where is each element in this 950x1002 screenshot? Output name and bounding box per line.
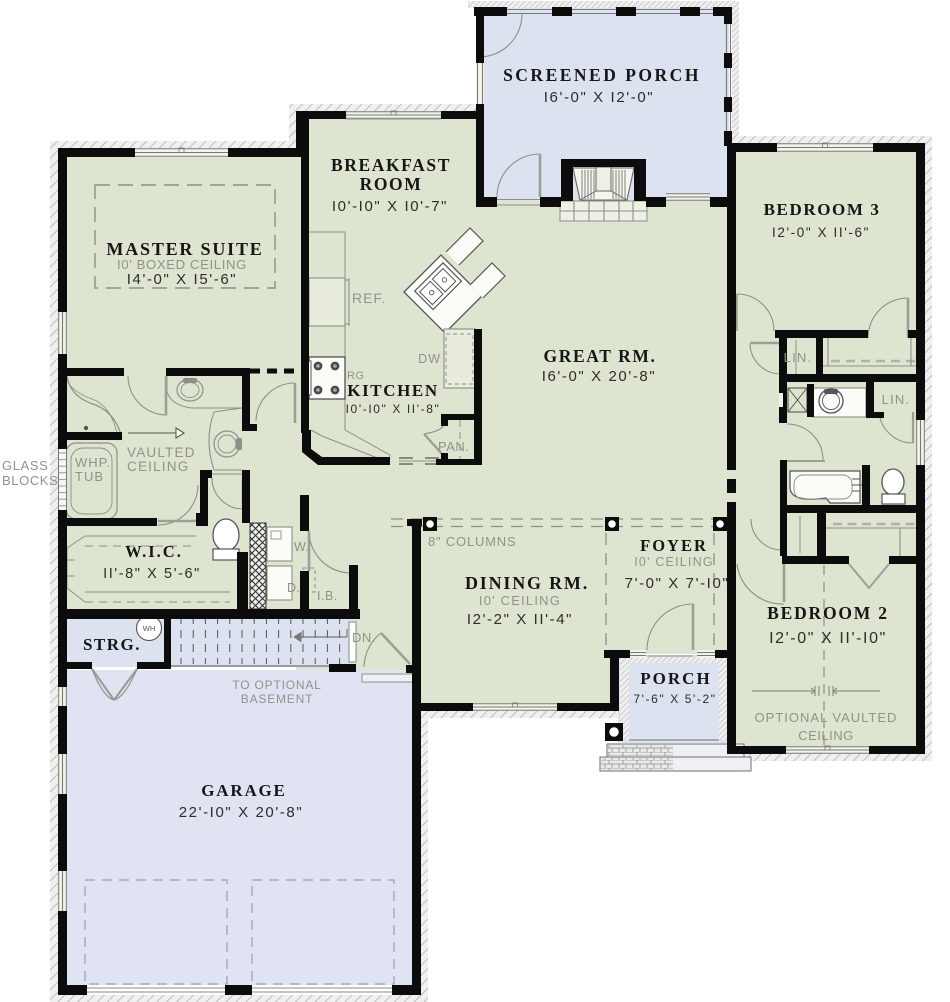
svg-text:8" COLUMNS: 8" COLUMNS: [428, 534, 516, 549]
svg-text:GREAT RM.: GREAT RM.: [544, 346, 657, 366]
svg-text:W.: W.: [294, 540, 310, 554]
svg-text:KITCHEN: KITCHEN: [347, 381, 439, 400]
svg-text:I2'-0" X II'-I0": I2'-0" X II'-I0": [769, 630, 887, 647]
svg-text:VAULTED: VAULTED: [127, 445, 196, 460]
svg-text:I2'-0" X II'-6": I2'-0" X II'-6": [772, 225, 870, 240]
svg-text:I0'-I0" X II'-8": I0'-I0" X II'-8": [346, 402, 441, 416]
svg-text:I.B.: I.B.: [317, 589, 338, 603]
svg-text:CEILING: CEILING: [127, 459, 189, 474]
svg-text:ROOM: ROOM: [360, 174, 423, 194]
svg-text:D.: D.: [287, 581, 301, 595]
svg-text:I0' CEILING: I0' CEILING: [479, 593, 561, 608]
svg-text:DN.: DN.: [352, 630, 376, 645]
svg-text:I0' BOXED CEILING: I0' BOXED CEILING: [117, 257, 247, 272]
svg-text:OPTIONAL VAULTED: OPTIONAL VAULTED: [755, 710, 898, 725]
svg-text:MASTER SUITE: MASTER SUITE: [106, 239, 263, 259]
svg-text:RG: RG: [347, 370, 365, 382]
svg-text:BEDROOM 3: BEDROOM 3: [764, 200, 881, 219]
svg-text:22'-I0" X 20'-8": 22'-I0" X 20'-8": [179, 804, 304, 821]
svg-text:TUB: TUB: [75, 469, 104, 484]
svg-text:GARAGE: GARAGE: [201, 781, 286, 800]
svg-text:WH: WH: [143, 624, 156, 633]
svg-text:FOYER: FOYER: [640, 536, 708, 555]
svg-text:WHP.: WHP.: [75, 455, 111, 470]
svg-text:W.I.C.: W.I.C.: [125, 542, 183, 561]
svg-text:GLASS: GLASS: [2, 458, 48, 473]
svg-text:BASEMENT: BASEMENT: [241, 692, 313, 706]
svg-text:I4'-0" X I5'-6": I4'-0" X I5'-6": [127, 271, 237, 288]
svg-text:BLOCKS: BLOCKS: [2, 473, 58, 488]
svg-text:BEDROOM 2: BEDROOM 2: [767, 603, 889, 623]
svg-text:I2'-2" X II'-4": I2'-2" X II'-4": [467, 611, 573, 628]
svg-text:LIN.: LIN.: [882, 392, 911, 407]
svg-text:BREAKFAST: BREAKFAST: [331, 155, 451, 175]
svg-text:II'-8" X 5'-6": II'-8" X 5'-6": [103, 566, 201, 582]
svg-text:I6'-0" X I2'-0": I6'-0" X I2'-0": [544, 89, 654, 106]
svg-text:DINING RM.: DINING RM.: [465, 573, 589, 593]
svg-text:7'-6" X 5'-2": 7'-6" X 5'-2": [633, 692, 716, 706]
svg-text:PORCH: PORCH: [640, 669, 711, 688]
svg-text:PAN.: PAN.: [438, 439, 469, 454]
svg-text:I0' CEILING: I0' CEILING: [634, 555, 714, 569]
svg-text:7'-0" X 7'-I0": 7'-0" X 7'-I0": [625, 575, 730, 592]
svg-text:I6'-0" X 20'-8": I6'-0" X 20'-8": [542, 368, 657, 385]
svg-text:LIN.: LIN.: [784, 350, 813, 365]
svg-text:CEILING: CEILING: [798, 728, 854, 743]
svg-text:STRG.: STRG.: [83, 635, 141, 654]
svg-text:REF.: REF.: [352, 290, 386, 306]
svg-text:DW: DW: [418, 352, 441, 366]
svg-text:SCREENED PORCH: SCREENED PORCH: [503, 65, 701, 85]
svg-text:TO OPTIONAL: TO OPTIONAL: [232, 678, 321, 692]
svg-text:I0'-I0" X I0'-7": I0'-I0" X I0'-7": [332, 198, 448, 215]
